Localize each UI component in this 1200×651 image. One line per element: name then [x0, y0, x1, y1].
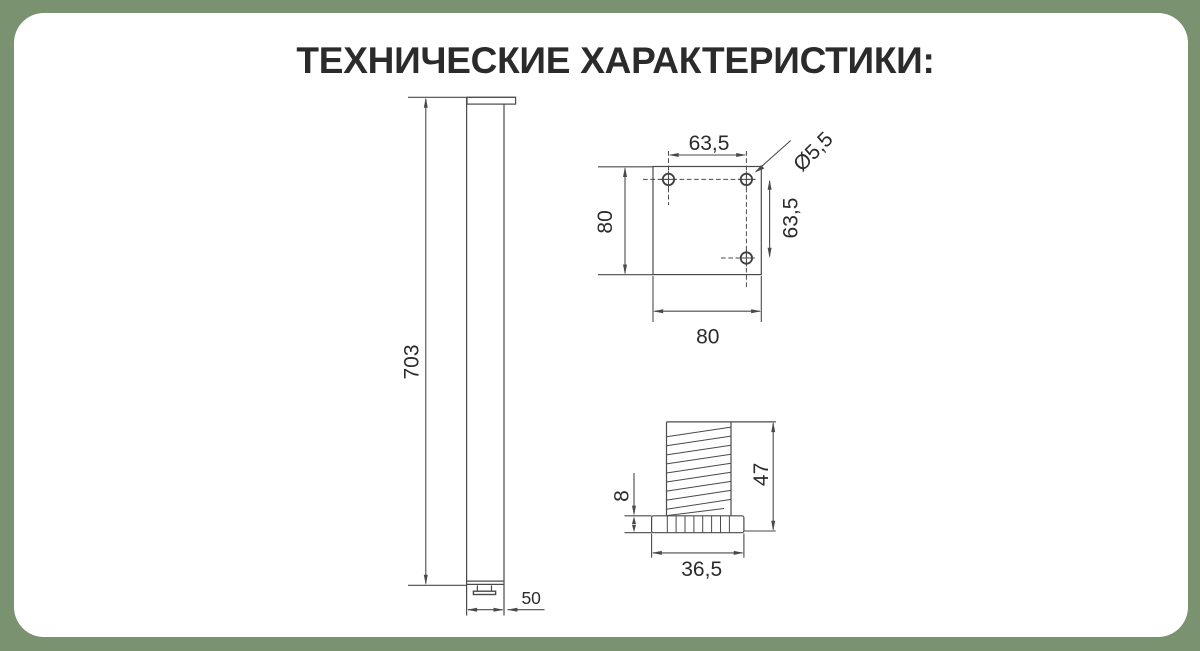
svg-text:Ø5,5: Ø5,5: [789, 128, 837, 176]
svg-text:36,5: 36,5: [681, 558, 722, 581]
svg-text:703: 703: [401, 344, 424, 379]
svg-text:80: 80: [696, 326, 719, 349]
svg-text:47: 47: [750, 463, 773, 486]
svg-text:50: 50: [521, 588, 541, 608]
svg-text:ТЕХНИЧЕСКИЕ ХАРАКТЕРИСТИКИ:: ТЕХНИЧЕСКИЕ ХАРАКТЕРИСТИКИ:: [296, 40, 934, 81]
svg-text:63,5: 63,5: [689, 132, 730, 155]
svg-text:80: 80: [594, 210, 617, 233]
svg-text:8: 8: [611, 490, 634, 502]
svg-text:63,5: 63,5: [780, 198, 803, 239]
